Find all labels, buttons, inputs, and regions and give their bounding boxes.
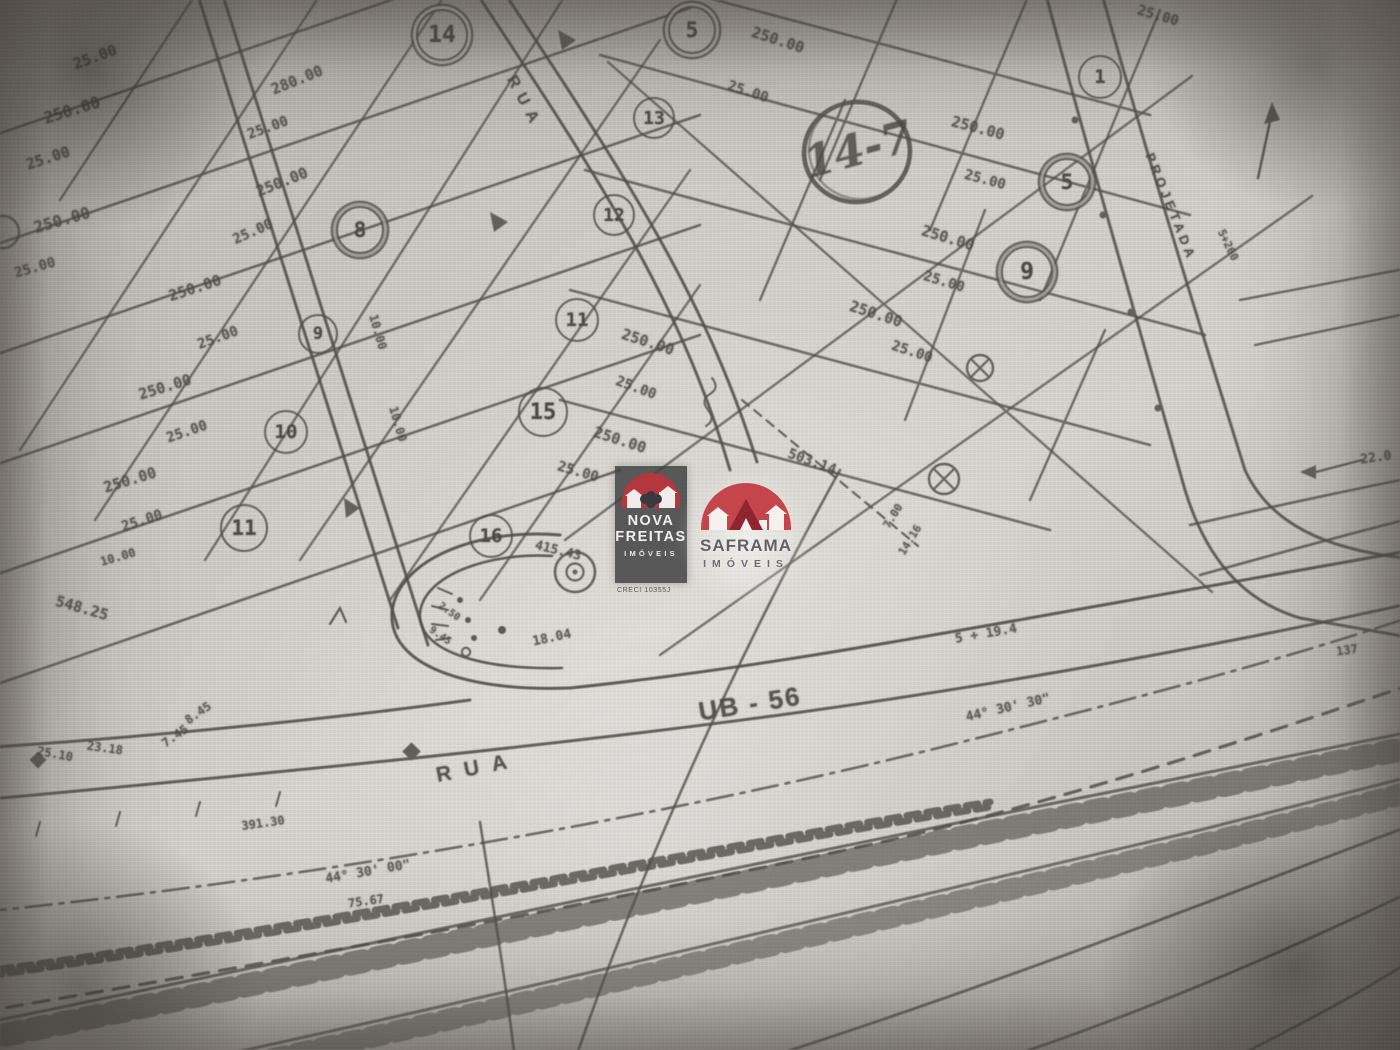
triangle-marker — [330, 608, 346, 624]
direction-arrowhead — [1264, 102, 1280, 124]
nova-freitas-logo: NOVA FREITAS IMÓVEIS — [615, 466, 687, 583]
building-icon — [659, 492, 675, 508]
nova-freitas-arch-icon — [622, 473, 680, 508]
lot-number-circle: 15 — [518, 387, 568, 437]
lot-number-circle: 11 — [220, 504, 268, 552]
lot-number-circle: 11 — [555, 298, 599, 342]
saframa-monogram-inner-icon — [740, 518, 752, 530]
boundary-dash-dot — [0, 612, 1400, 912]
dimension-arrow — [1316, 460, 1362, 472]
saframa-logo: SAFRAMA IMÓVEIS — [692, 483, 800, 593]
lot-number-circle: 16 — [469, 514, 513, 558]
lot-number-circle: 5 — [668, 6, 716, 54]
tree-trunk-icon — [649, 499, 653, 508]
lot-number-circle: 9 — [1001, 246, 1053, 298]
house-icon — [627, 495, 641, 508]
lot-number-circle: 9 — [298, 314, 338, 354]
lot-number-circle: 12 — [593, 194, 635, 236]
lot-number-circle: 13 — [633, 97, 675, 139]
survey-plat-map-photo: 25.00250.0025.00250.0025.00280.0025.0025… — [0, 0, 1400, 1050]
saframa-subtitle: IMÓVEIS — [692, 558, 800, 570]
lot-number-circle: 8 — [336, 206, 384, 254]
nova-freitas-name-line1: NOVA — [628, 513, 675, 529]
lot-number-circle: 14 — [416, 9, 468, 61]
lot-number-circle: 5 — [1043, 158, 1091, 206]
lot-grid-left — [0, 0, 700, 690]
nova-freitas-name-line3: IMÓVEIS — [624, 549, 678, 558]
chain-symbol-row — [0, 802, 990, 977]
saframa-name: SAFRAMA — [692, 536, 800, 556]
nova-freitas-creci: CRECI 10355J — [617, 587, 671, 594]
house-icon — [709, 515, 727, 530]
lot-number-circle: 1 — [1078, 55, 1122, 99]
nova-freitas-name-line2: FREITAS — [615, 529, 686, 545]
measurement-label: 137 — [1335, 642, 1358, 659]
building-icon — [769, 513, 784, 530]
lot-number-circle: 10 — [264, 410, 308, 454]
